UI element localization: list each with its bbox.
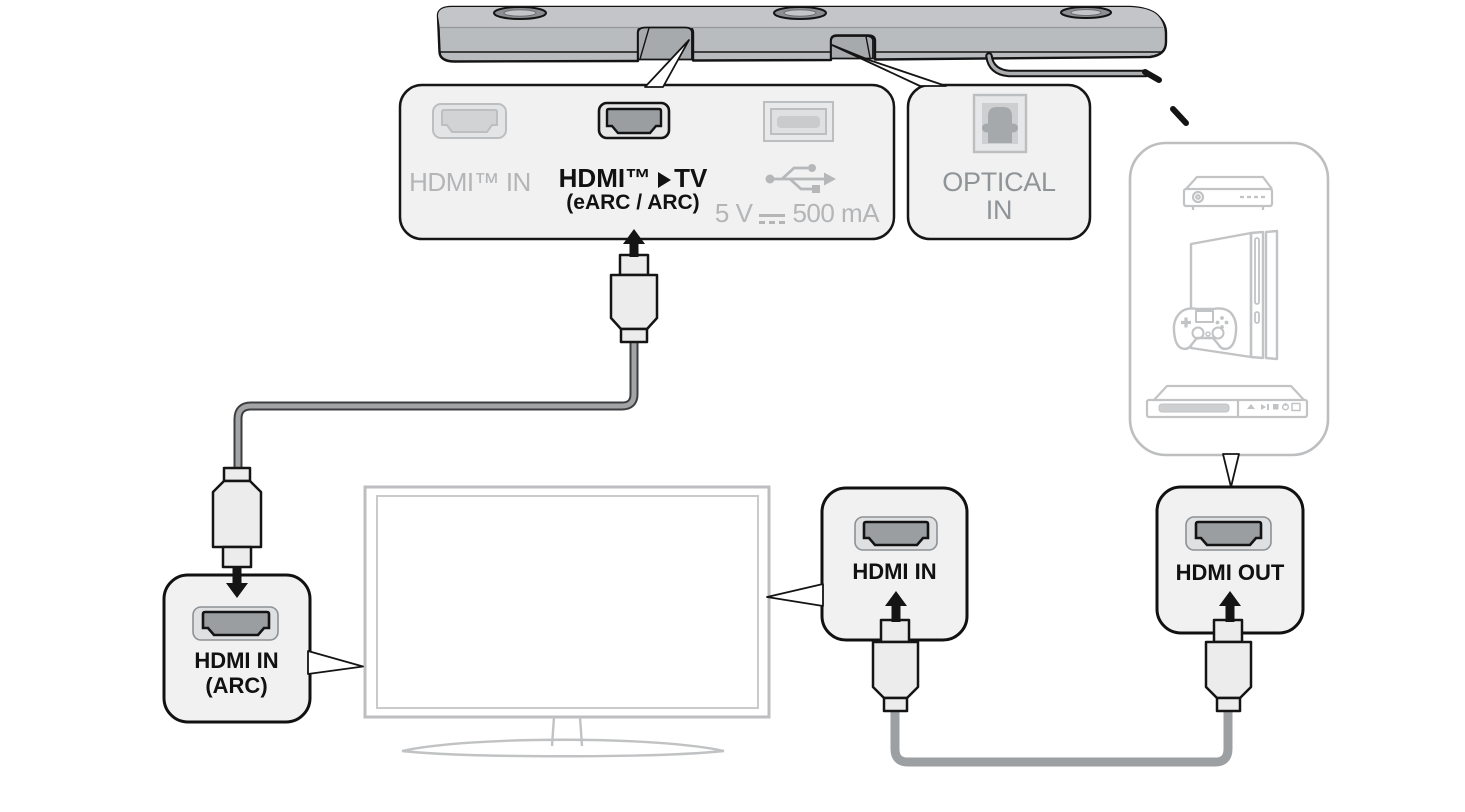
usb-power-label: 5 V 500 mA <box>700 198 894 229</box>
hdmi-connector-to-soundbar <box>611 255 657 342</box>
cord-break-mark <box>1173 109 1186 123</box>
connection-diagram: HDMI™ IN HDMI™ TV (eARC / ARC) 5 V 500 m… <box>0 0 1465 812</box>
hdmi-in-b-port-icon <box>855 517 937 550</box>
tv <box>365 487 769 756</box>
hdmi-out-port-icon <box>1186 517 1271 550</box>
device-hdmi-out-label: HDMI OUT <box>1158 560 1302 586</box>
optical-port-icon <box>974 95 1026 152</box>
hdmi-cable-device-to-tv <box>895 710 1228 762</box>
callout-devices-to-hdmi-out <box>1223 454 1239 487</box>
device-hdmi-in-label: HDMI IN <box>823 559 966 585</box>
callout-hdmi-in-panel-to-tv <box>767 584 823 606</box>
optical-in-label-line1: OPTICAL <box>925 167 1073 198</box>
hdmi-tv-label-pre: HDMI™ <box>559 163 651 194</box>
usb-port-icon <box>764 102 833 141</box>
optical-in-label-line2: IN <box>925 195 1073 226</box>
hdmi-tv-port-sublabel: (eARC / ARC) <box>556 191 710 215</box>
soundbar-recess-hdmi <box>638 28 692 60</box>
hdmi-connector-to-tv-arc <box>213 468 261 567</box>
tv-hdmi-arc-label-line1: HDMI IN <box>166 648 307 674</box>
external-devices-box <box>1130 143 1328 455</box>
hdmi-tv-port-label: HDMI™ TV <box>556 163 710 194</box>
hdmi-arc-port-icon <box>193 607 278 640</box>
arrow-right-icon <box>658 172 671 188</box>
usb-power-suffix: 500 mA <box>792 198 879 229</box>
tv-stand-base <box>402 740 724 757</box>
hdmi-arc-tv-port-icon <box>599 103 669 138</box>
callout-arc-panel-to-tv <box>308 651 363 674</box>
hdmi-tv-label-post: TV <box>674 163 707 194</box>
tv-hdmi-arc-label-line2: (ARC) <box>166 673 307 699</box>
hdmi-in-port-icon <box>433 104 506 138</box>
usb-power-prefix: 5 V <box>715 198 753 229</box>
dc-power-icon <box>759 214 785 224</box>
hdmi-cable-soundbar-to-tv <box>238 341 634 469</box>
hdmi-in-port-label: HDMI™ IN <box>403 167 537 198</box>
soundbar <box>438 7 1166 62</box>
